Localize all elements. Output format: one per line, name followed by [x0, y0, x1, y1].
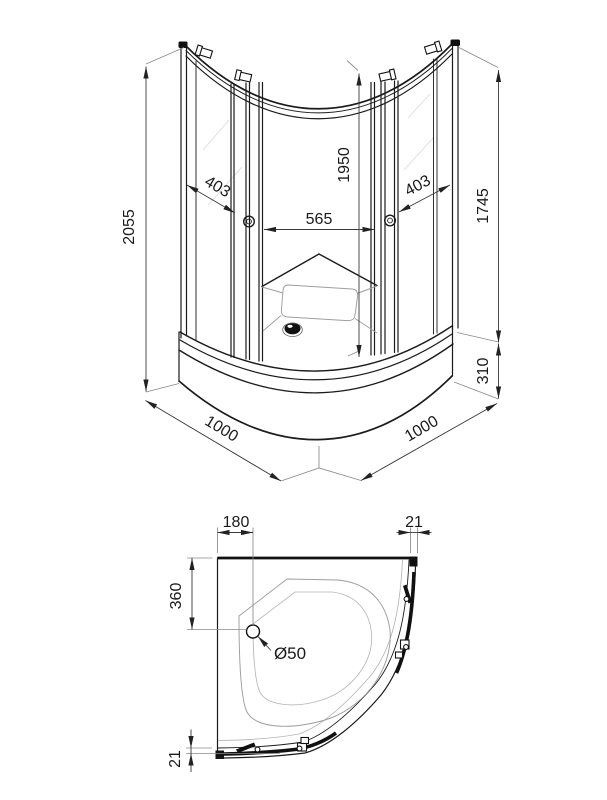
wall-profile-top-right: [410, 557, 418, 567]
paper-background: [0, 0, 607, 800]
dim-label-center-width: 565: [306, 211, 333, 228]
drain-hole: [247, 625, 260, 638]
dim-label-drain-from-side: 180: [223, 514, 250, 531]
post-cap-right: [451, 40, 461, 47]
dim-label-total-height: 2055: [121, 209, 138, 245]
dim-label-side-height: 1745: [475, 188, 492, 224]
dim-label-tray-height: 310: [475, 358, 492, 385]
dim-label-drain-from-back: 360: [168, 583, 185, 610]
technical-drawing-page: 2055 403 403 565 1950 1745 310: [0, 0, 607, 800]
dim-label-door-height: 1950: [336, 147, 353, 183]
shower-enclosure-drawing: 2055 403 403 565 1950 1745 310: [0, 0, 607, 800]
dim-label-front-profile-width: 21: [167, 750, 184, 768]
dim-label-top-profile-width: 21: [405, 514, 423, 531]
post-cap-left: [179, 42, 188, 49]
dim-label-drain-diameter: Ø50: [274, 644, 306, 663]
